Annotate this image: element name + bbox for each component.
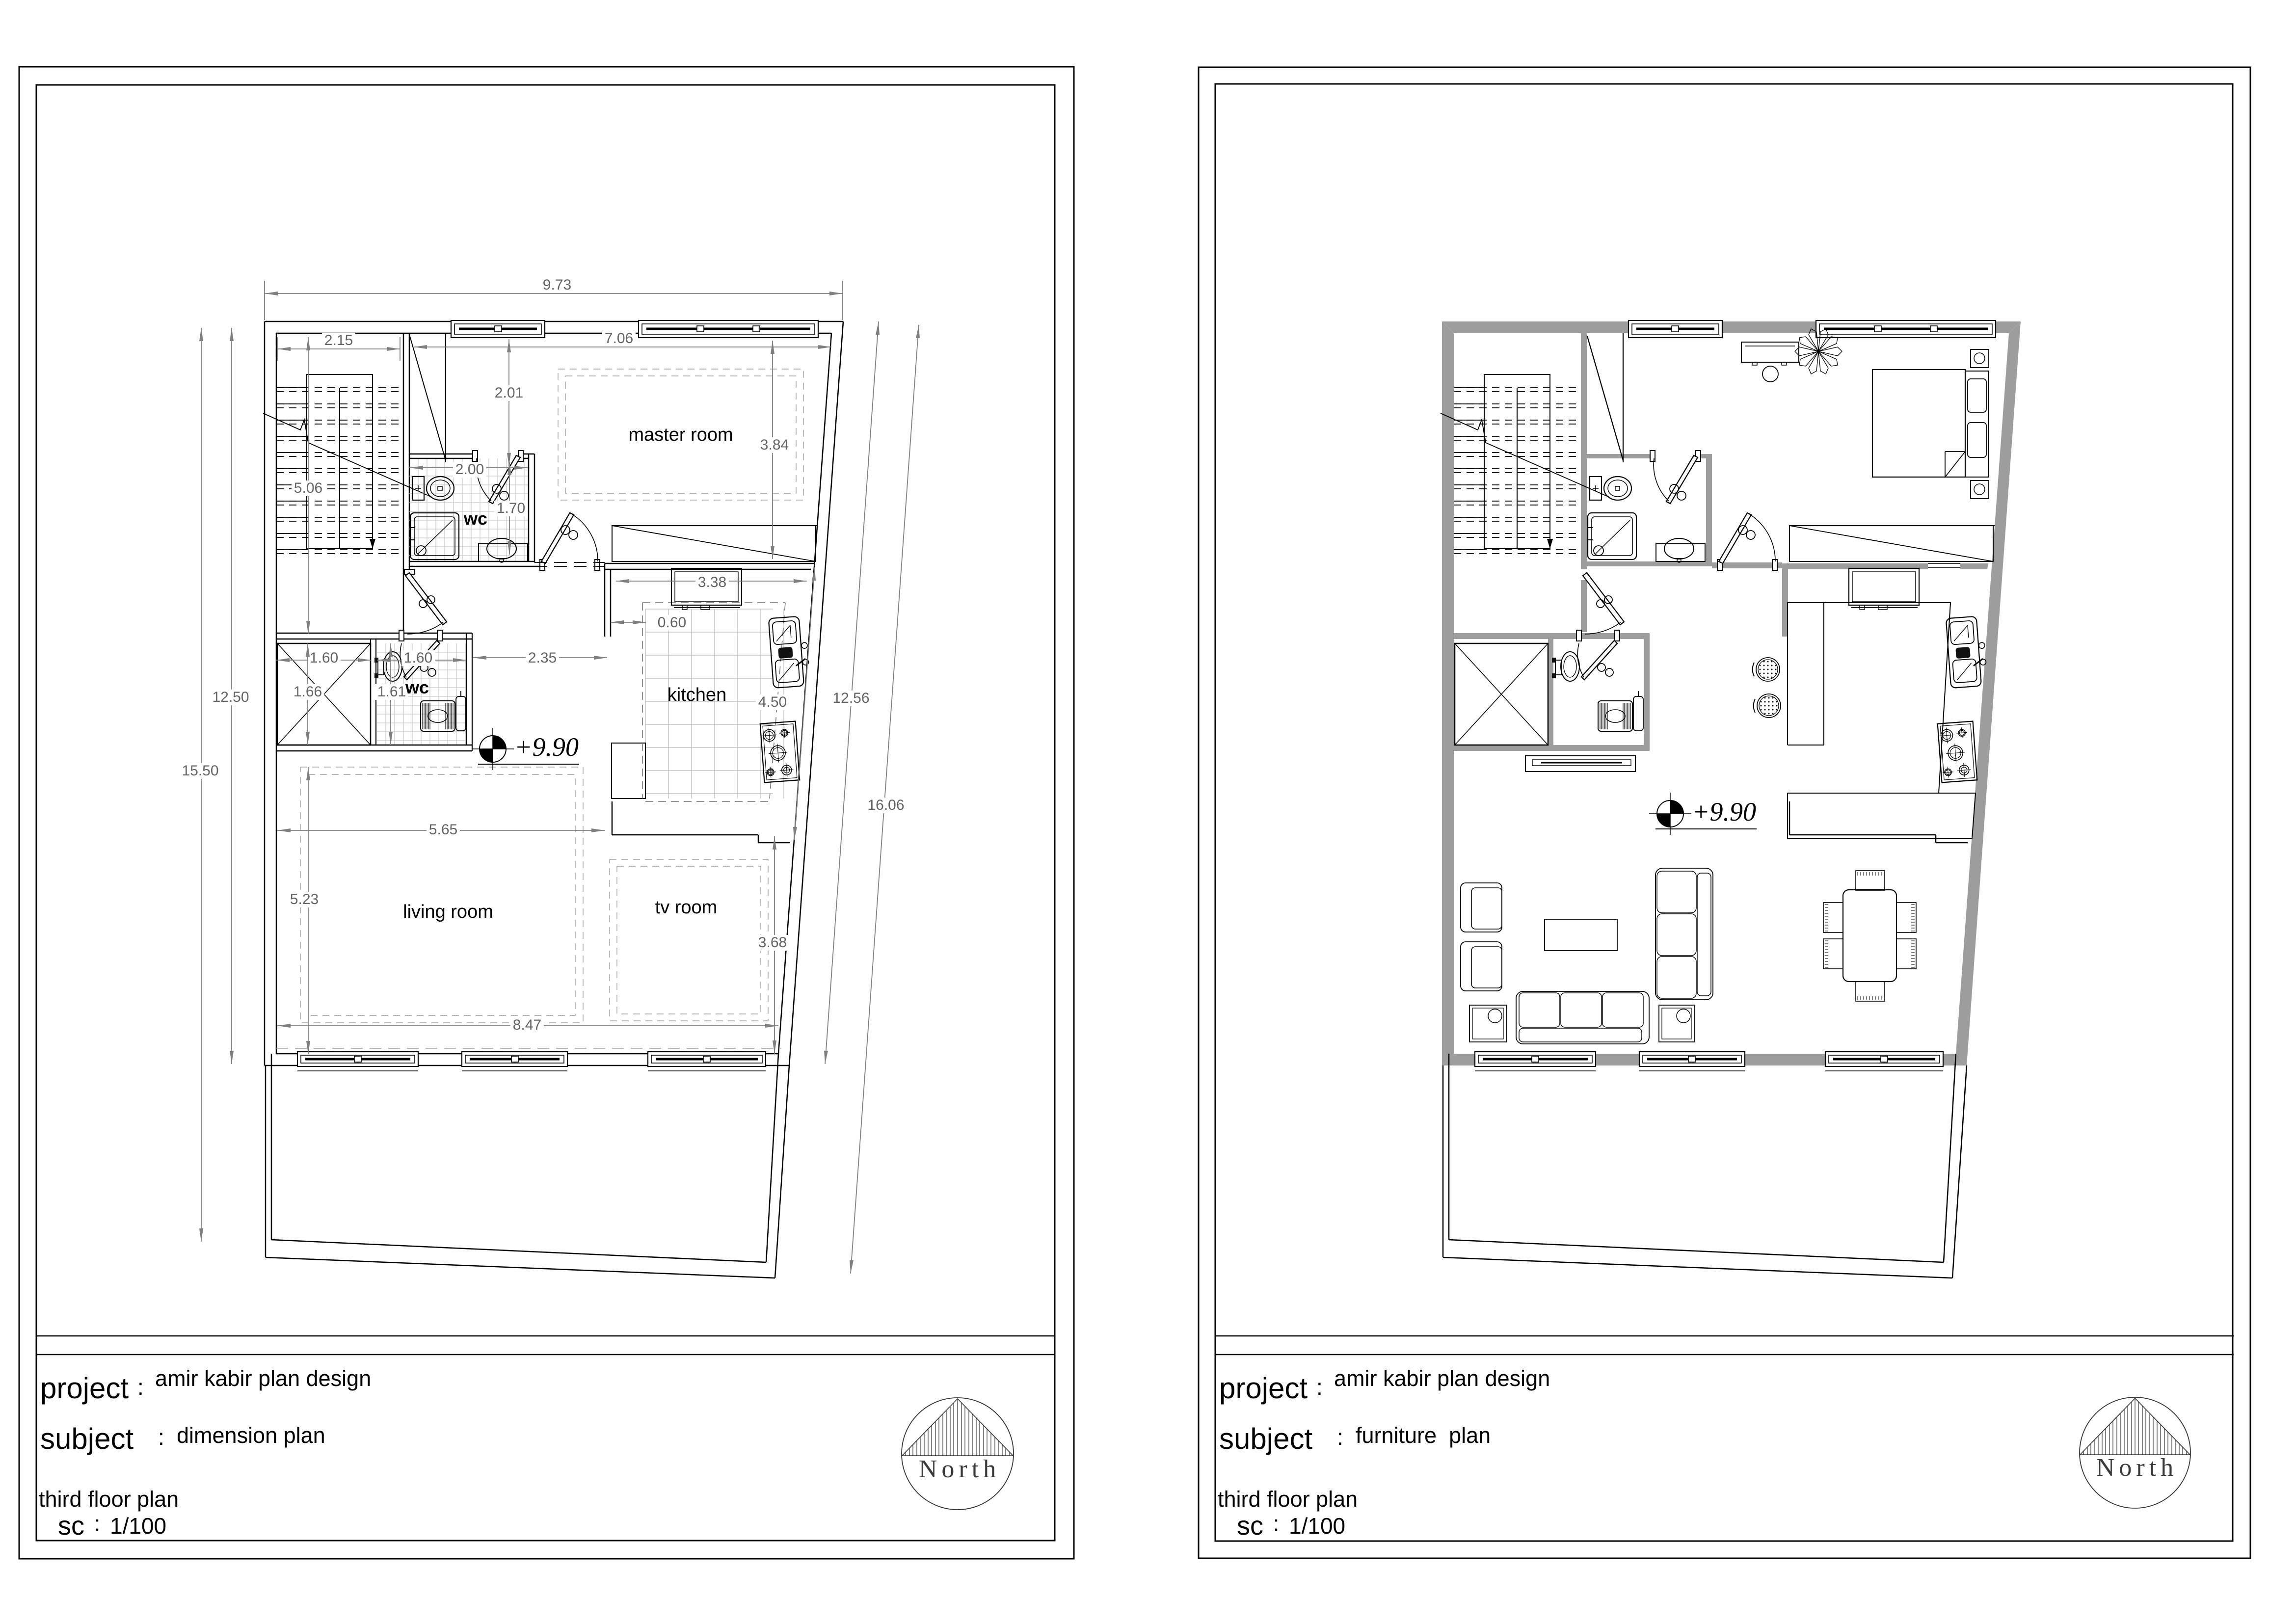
svg-text:9.73: 9.73: [543, 277, 571, 293]
svg-text:subject: subject: [40, 1422, 133, 1455]
svg-text:kitchen: kitchen: [667, 685, 726, 705]
svg-text:0.60: 0.60: [658, 614, 686, 631]
svg-text:amir kabir plan design: amir kabir plan design: [155, 1366, 371, 1391]
svg-text:12.56: 12.56: [832, 690, 869, 706]
svg-text::: :: [1316, 1374, 1323, 1400]
svg-text:amir kabir plan design: amir kabir plan design: [1334, 1366, 1550, 1391]
svg-text:+9.90: +9.90: [1692, 797, 1756, 826]
svg-text::: :: [158, 1424, 164, 1450]
svg-text:5.23: 5.23: [290, 891, 319, 907]
svg-text:1/100: 1/100: [110, 1513, 166, 1539]
svg-text:+9.90: +9.90: [514, 732, 579, 762]
svg-text::: :: [94, 1512, 100, 1536]
svg-text:3.68: 3.68: [758, 934, 787, 951]
svg-text:16.06: 16.06: [867, 797, 904, 813]
svg-text:master room: master room: [628, 425, 733, 445]
svg-text:1.60: 1.60: [404, 650, 432, 666]
svg-text:1.66: 1.66: [294, 684, 322, 700]
svg-text:2.15: 2.15: [324, 332, 353, 348]
svg-text:North: North: [2096, 1454, 2178, 1482]
svg-text:1.70: 1.70: [497, 500, 525, 516]
svg-text:4.50: 4.50: [758, 694, 787, 710]
svg-text:project: project: [40, 1372, 129, 1405]
svg-text:third floor plan: third floor plan: [39, 1487, 179, 1512]
svg-text:sc: sc: [1237, 1511, 1263, 1541]
svg-text:1.61: 1.61: [377, 684, 406, 700]
svg-text:15.50: 15.50: [182, 763, 218, 779]
svg-text:tv room: tv room: [655, 897, 718, 918]
svg-text:wc: wc: [463, 508, 487, 529]
svg-text:furniture plan: furniture plan: [1356, 1423, 1491, 1448]
svg-text:1.60: 1.60: [310, 650, 338, 666]
svg-text:1/100: 1/100: [1289, 1513, 1345, 1539]
svg-text:living room: living room: [403, 902, 493, 922]
svg-text:third floor plan: third floor plan: [1218, 1487, 1358, 1512]
svg-text:wc: wc: [405, 677, 429, 697]
svg-text:2.35: 2.35: [528, 650, 557, 666]
svg-text::: :: [1337, 1424, 1343, 1450]
svg-text:project: project: [1219, 1372, 1308, 1405]
svg-text:8.47: 8.47: [513, 1017, 541, 1033]
svg-text:subject: subject: [1219, 1422, 1312, 1455]
svg-text:12.50: 12.50: [212, 689, 249, 705]
svg-text:3.84: 3.84: [760, 437, 789, 453]
svg-text:dimension plan: dimension plan: [177, 1423, 325, 1448]
svg-text:5.06: 5.06: [294, 480, 322, 496]
svg-text::: :: [137, 1374, 144, 1400]
svg-text:7.06: 7.06: [605, 330, 633, 346]
svg-text:North: North: [919, 1455, 1000, 1483]
svg-text:sc: sc: [58, 1511, 84, 1541]
svg-text:3.38: 3.38: [698, 574, 726, 590]
svg-text:2.01: 2.01: [495, 385, 523, 401]
svg-text::: :: [1273, 1512, 1279, 1536]
svg-text:2.00: 2.00: [455, 461, 484, 478]
svg-text:5.65: 5.65: [429, 822, 457, 838]
